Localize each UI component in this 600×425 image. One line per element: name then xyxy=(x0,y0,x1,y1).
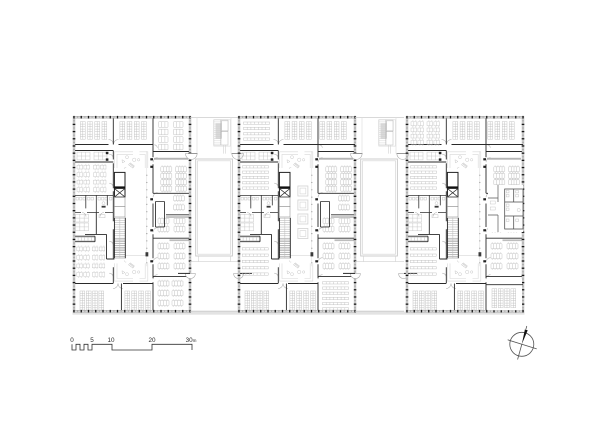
svg-text:10: 10 xyxy=(107,337,115,344)
svg-text:30m: 30m xyxy=(186,337,197,344)
svg-text:20: 20 xyxy=(148,337,156,344)
svg-text:5: 5 xyxy=(90,337,94,344)
svg-text:0: 0 xyxy=(70,337,74,344)
